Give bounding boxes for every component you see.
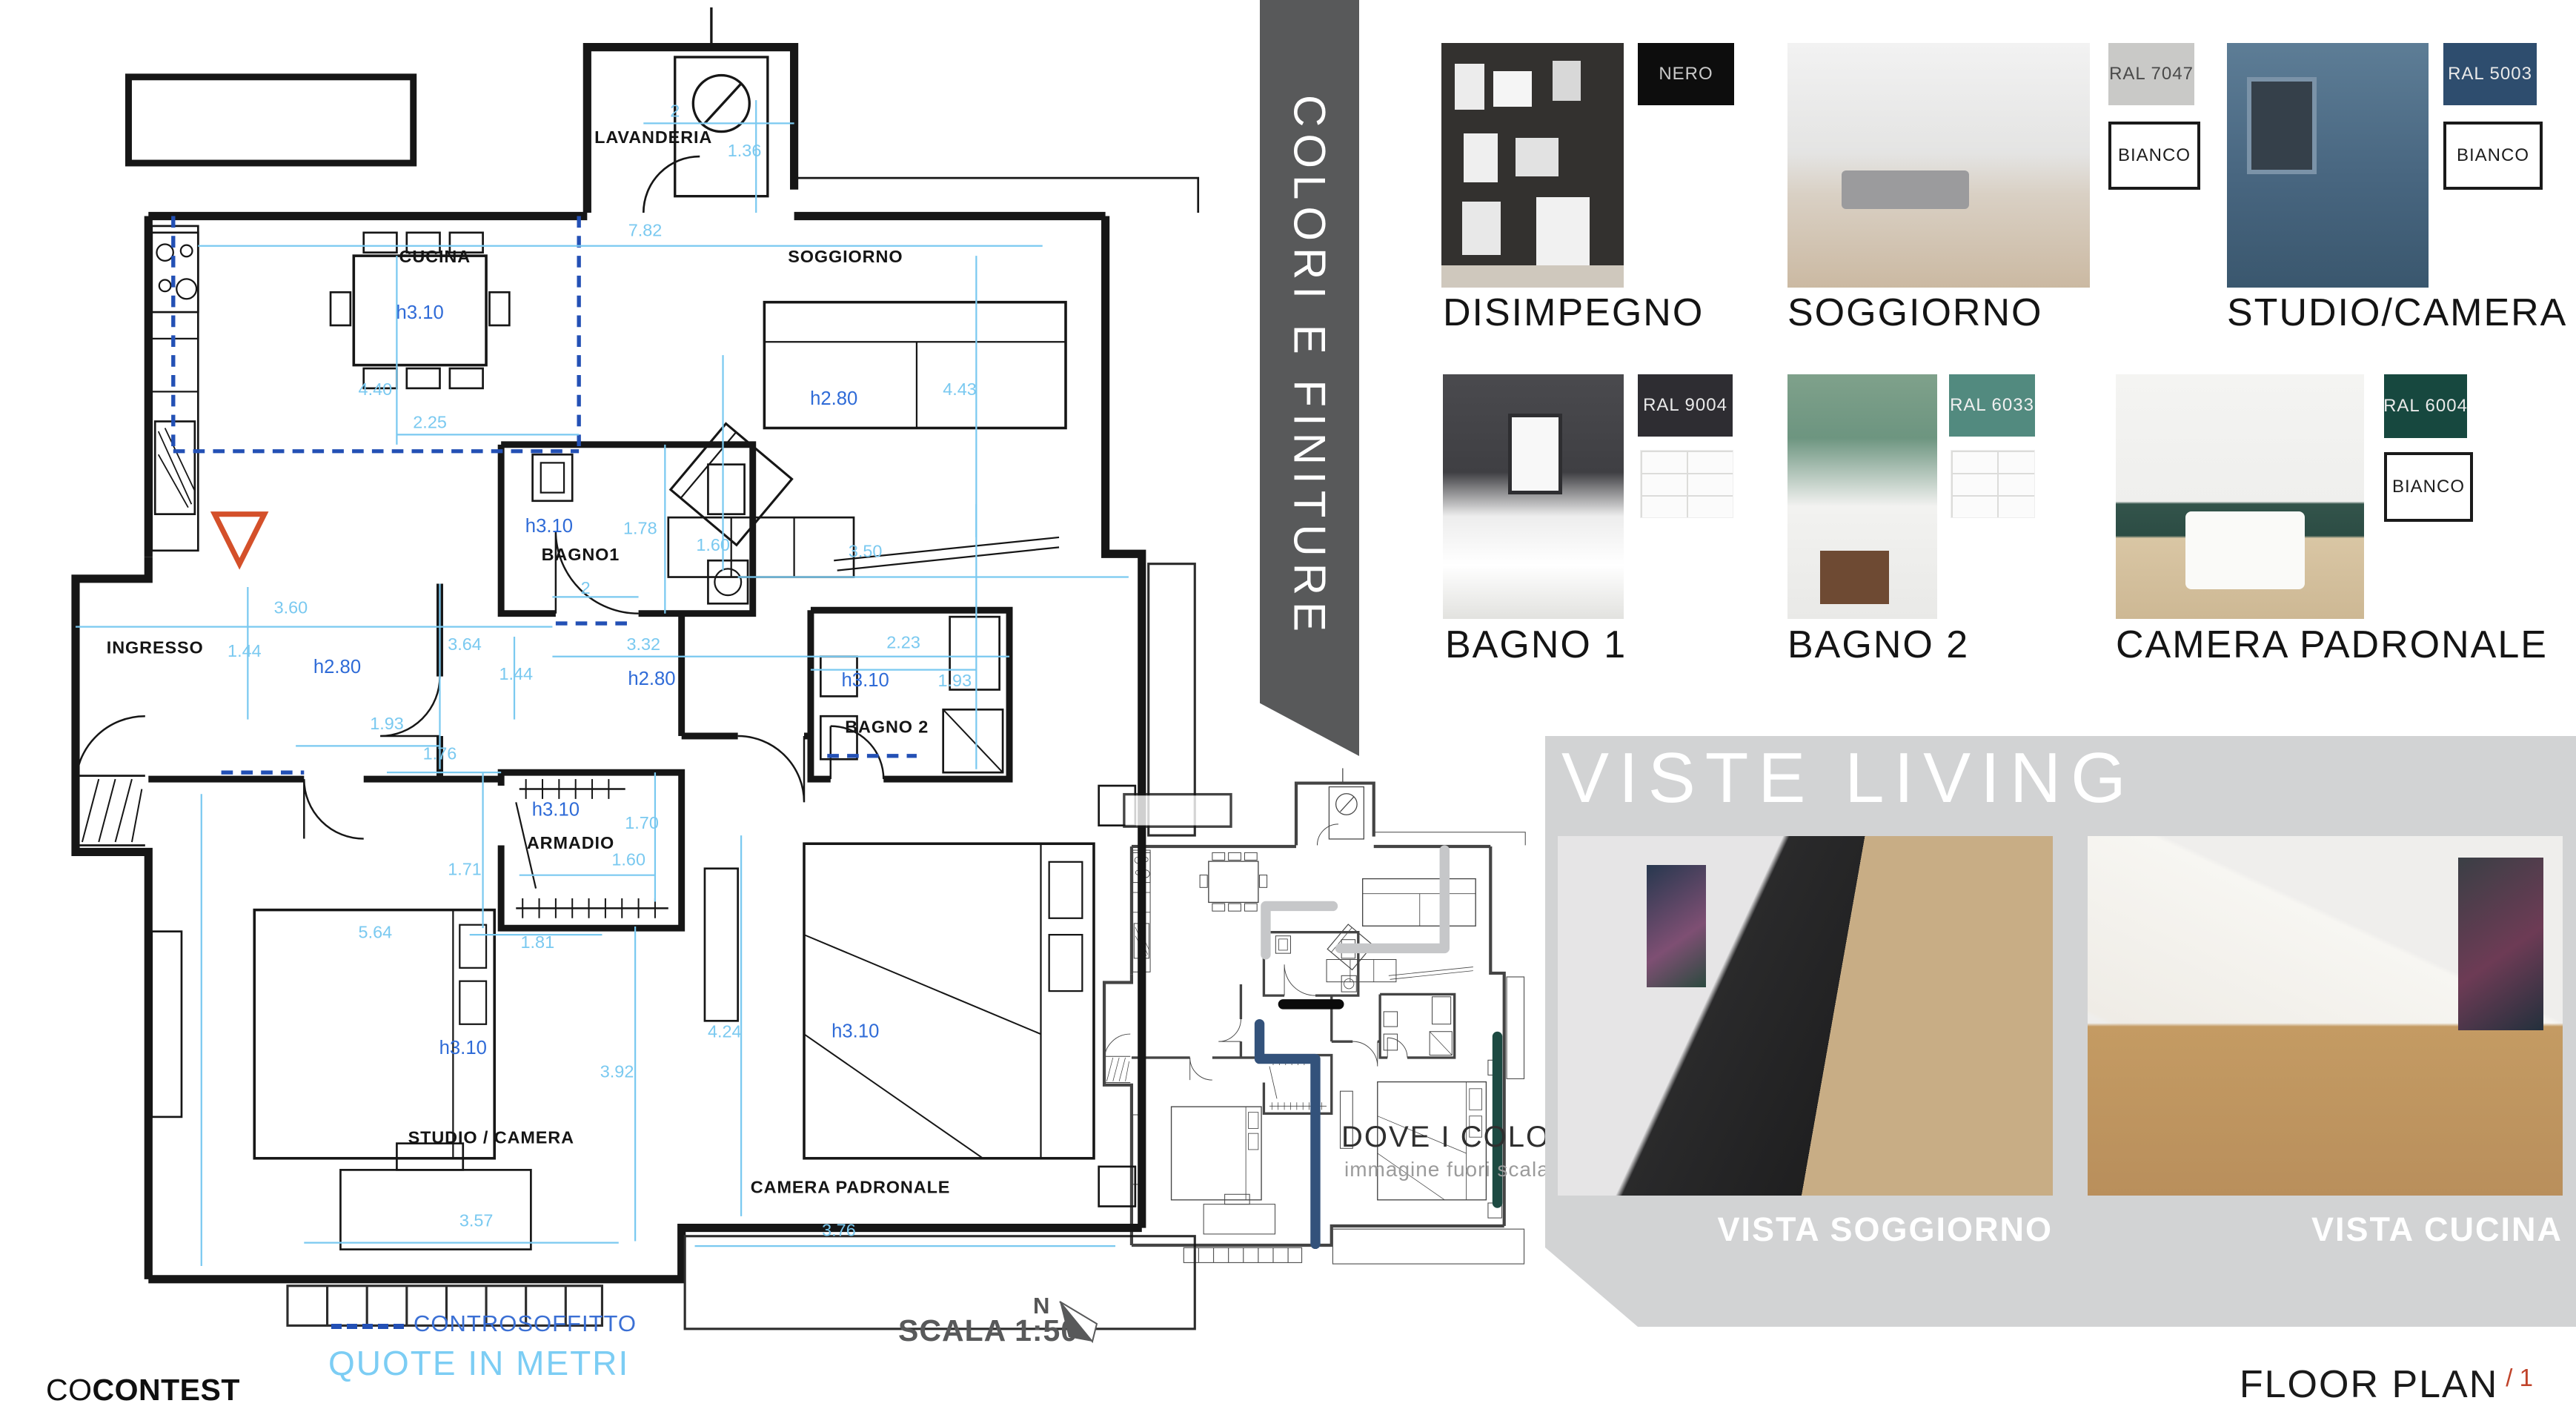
- plan-label: 3.76: [822, 1221, 856, 1240]
- plan-label: 1.76: [423, 743, 457, 763]
- plan-label: 2.23: [886, 633, 920, 652]
- entry-triangle-icon: [215, 514, 265, 564]
- photo-camera-padronale: [2116, 374, 2364, 619]
- plan-label: h2.80: [810, 388, 857, 409]
- plan-label: 1.36: [728, 141, 762, 160]
- plan-label: 1.78: [623, 518, 657, 537]
- section-title-studio-camera: STUDIO/CAMERA: [2227, 291, 2567, 335]
- swatch-nero: NERO: [1638, 43, 1734, 105]
- plan-label: 1.60: [696, 535, 730, 554]
- photo-disimpegno: [1441, 43, 1624, 288]
- page-number: / 1: [2506, 1364, 2533, 1392]
- plan-label: 4.40: [359, 379, 393, 399]
- vista-cucina-label: VISTA CUCINA: [2088, 1210, 2563, 1249]
- plan-label: h2.80: [628, 669, 675, 689]
- plan-label: 7.82: [628, 220, 663, 239]
- plan-label: 1.44: [228, 641, 262, 660]
- plan-label: 2: [670, 101, 680, 120]
- color-routes: [1260, 850, 1498, 1244]
- plan-label: h3.10: [525, 516, 573, 537]
- viste-living-title: VISTE LIVING: [1561, 738, 2136, 819]
- photo-bagno-2: [1787, 374, 1937, 619]
- section-title-bagno-1: BAGNO 1: [1445, 623, 1627, 667]
- plan-label: 3.92: [600, 1061, 634, 1081]
- viste-living-panel: VISTE LIVING VISTA SOGGIORNO VISTA CUCIN…: [1545, 736, 2576, 1327]
- north-arrow: N: [1035, 1296, 1101, 1366]
- section-title-soggiorno: SOGGIORNO: [1787, 291, 2042, 335]
- swatch-ral-6004: RAL 6004: [2384, 374, 2467, 438]
- plan-label: ARMADIO: [527, 833, 614, 852]
- tile-sample-bagno-1: [1640, 450, 1733, 518]
- plan-label: 3.32: [626, 634, 660, 654]
- cocontest-logo: COCONTEST: [46, 1373, 240, 1408]
- section-title-bagno-2: BAGNO 2: [1787, 623, 1969, 667]
- plan-label: 1.71: [448, 860, 482, 879]
- north-label: N: [1033, 1293, 1049, 1319]
- swatch-ral-6033: RAL 6033: [1949, 374, 2035, 437]
- swatch-bianco-studio: BIANCO: [2443, 122, 2543, 190]
- plan-label: h3.10: [439, 1038, 487, 1058]
- plan-label: 1.93: [370, 714, 404, 733]
- plan-label: 2.25: [413, 412, 447, 431]
- logo-part-contest: CONTEST: [93, 1373, 240, 1407]
- floor-plan: LAVANDERIACUCINASOGGIORNOBAGNO1INGRESSOB…: [56, 7, 1241, 1365]
- render-vista-soggiorno: [1558, 836, 2053, 1196]
- plan-label: 3.60: [274, 598, 308, 617]
- plan-label: BAGNO 2: [845, 717, 929, 737]
- controsoffitto-dash-icon: [331, 1324, 404, 1329]
- footer: FLOOR PLAN / 1: [2240, 1362, 2533, 1407]
- photo-studio-camera: [2227, 43, 2429, 288]
- colori-e-finiture-banner: COLORI E FINITURE: [1260, 0, 1359, 756]
- plan-label: STUDIO / CAMERA: [408, 1128, 574, 1147]
- logo-part-co: CO: [46, 1373, 93, 1407]
- plan-label: 3.64: [448, 634, 482, 654]
- swatch-ral-9004: RAL 9004: [1638, 374, 1733, 437]
- plan-label: INGRESSO: [107, 637, 204, 657]
- plan-label: SOGGIORNO: [788, 247, 903, 266]
- photo-soggiorno: [1787, 43, 2090, 288]
- plan-label: 1.70: [625, 813, 659, 832]
- swatch-ral-5003: RAL 5003: [2443, 43, 2537, 105]
- plan-label: 1.60: [611, 849, 645, 869]
- photo-bagno-1: [1443, 374, 1624, 619]
- plan-label: 3.50: [849, 542, 883, 561]
- plan-label: h3.10: [842, 670, 889, 691]
- floor-plan-labels: LAVANDERIACUCINASOGGIORNOBAGNO1INGRESSOB…: [107, 101, 977, 1239]
- vista-soggiorno-label: VISTA SOGGIORNO: [1558, 1210, 2053, 1249]
- plan-label: LAVANDERIA: [594, 127, 712, 147]
- swatch-ral-7047: RAL 7047: [2108, 43, 2194, 105]
- legend-controsoffitto: CONTROSOFFITTO: [414, 1310, 637, 1337]
- plan-label: 1.81: [520, 932, 554, 952]
- immagine-fuori-scala: immagine fuori scala: [1344, 1158, 1550, 1181]
- plan-label: 4.43: [943, 379, 977, 399]
- swatch-bianco-camera: BIANCO: [2384, 452, 2473, 522]
- plan-label: h3.10: [831, 1021, 879, 1042]
- floor-plan-title: FLOOR PLAN: [2240, 1362, 2498, 1407]
- mini-plan: [1097, 738, 1541, 1308]
- section-title-disimpegno: DISIMPEGNO: [1443, 291, 1704, 335]
- plan-label: CUCINA: [399, 247, 471, 266]
- plan-label: 1.93: [938, 671, 972, 690]
- plan-label: BAGNO1: [542, 545, 620, 564]
- banner-title: COLORI E FINITURE: [1284, 95, 1335, 756]
- controsoffitto-dashes: [173, 216, 917, 773]
- plan-label: h3.10: [396, 302, 444, 323]
- plan-label: 5.64: [359, 923, 393, 942]
- legend-quote-in-metri: QUOTE IN METRI: [328, 1343, 629, 1383]
- swatch-bianco-soggiorno: BIANCO: [2108, 122, 2200, 190]
- plan-label: 2: [581, 578, 591, 597]
- section-title-camera-padronale: CAMERA PADRONALE: [2116, 623, 2548, 667]
- plan-label: 1.44: [499, 664, 533, 683]
- plan-label: 3.57: [459, 1210, 494, 1230]
- plan-label: CAMERA PADRONALE: [751, 1178, 951, 1197]
- render-vista-cucina: [2088, 836, 2563, 1196]
- tile-sample-bagno-2: [1951, 450, 2035, 518]
- plan-label: h2.80: [313, 657, 361, 677]
- plan-label: 4.24: [708, 1022, 742, 1041]
- route-blu: [1260, 1024, 1315, 1244]
- presentation-board: LAVANDERIACUCINASOGGIORNOBAGNO1INGRESSOB…: [0, 0, 2576, 1412]
- plan-label: h3.10: [532, 799, 580, 820]
